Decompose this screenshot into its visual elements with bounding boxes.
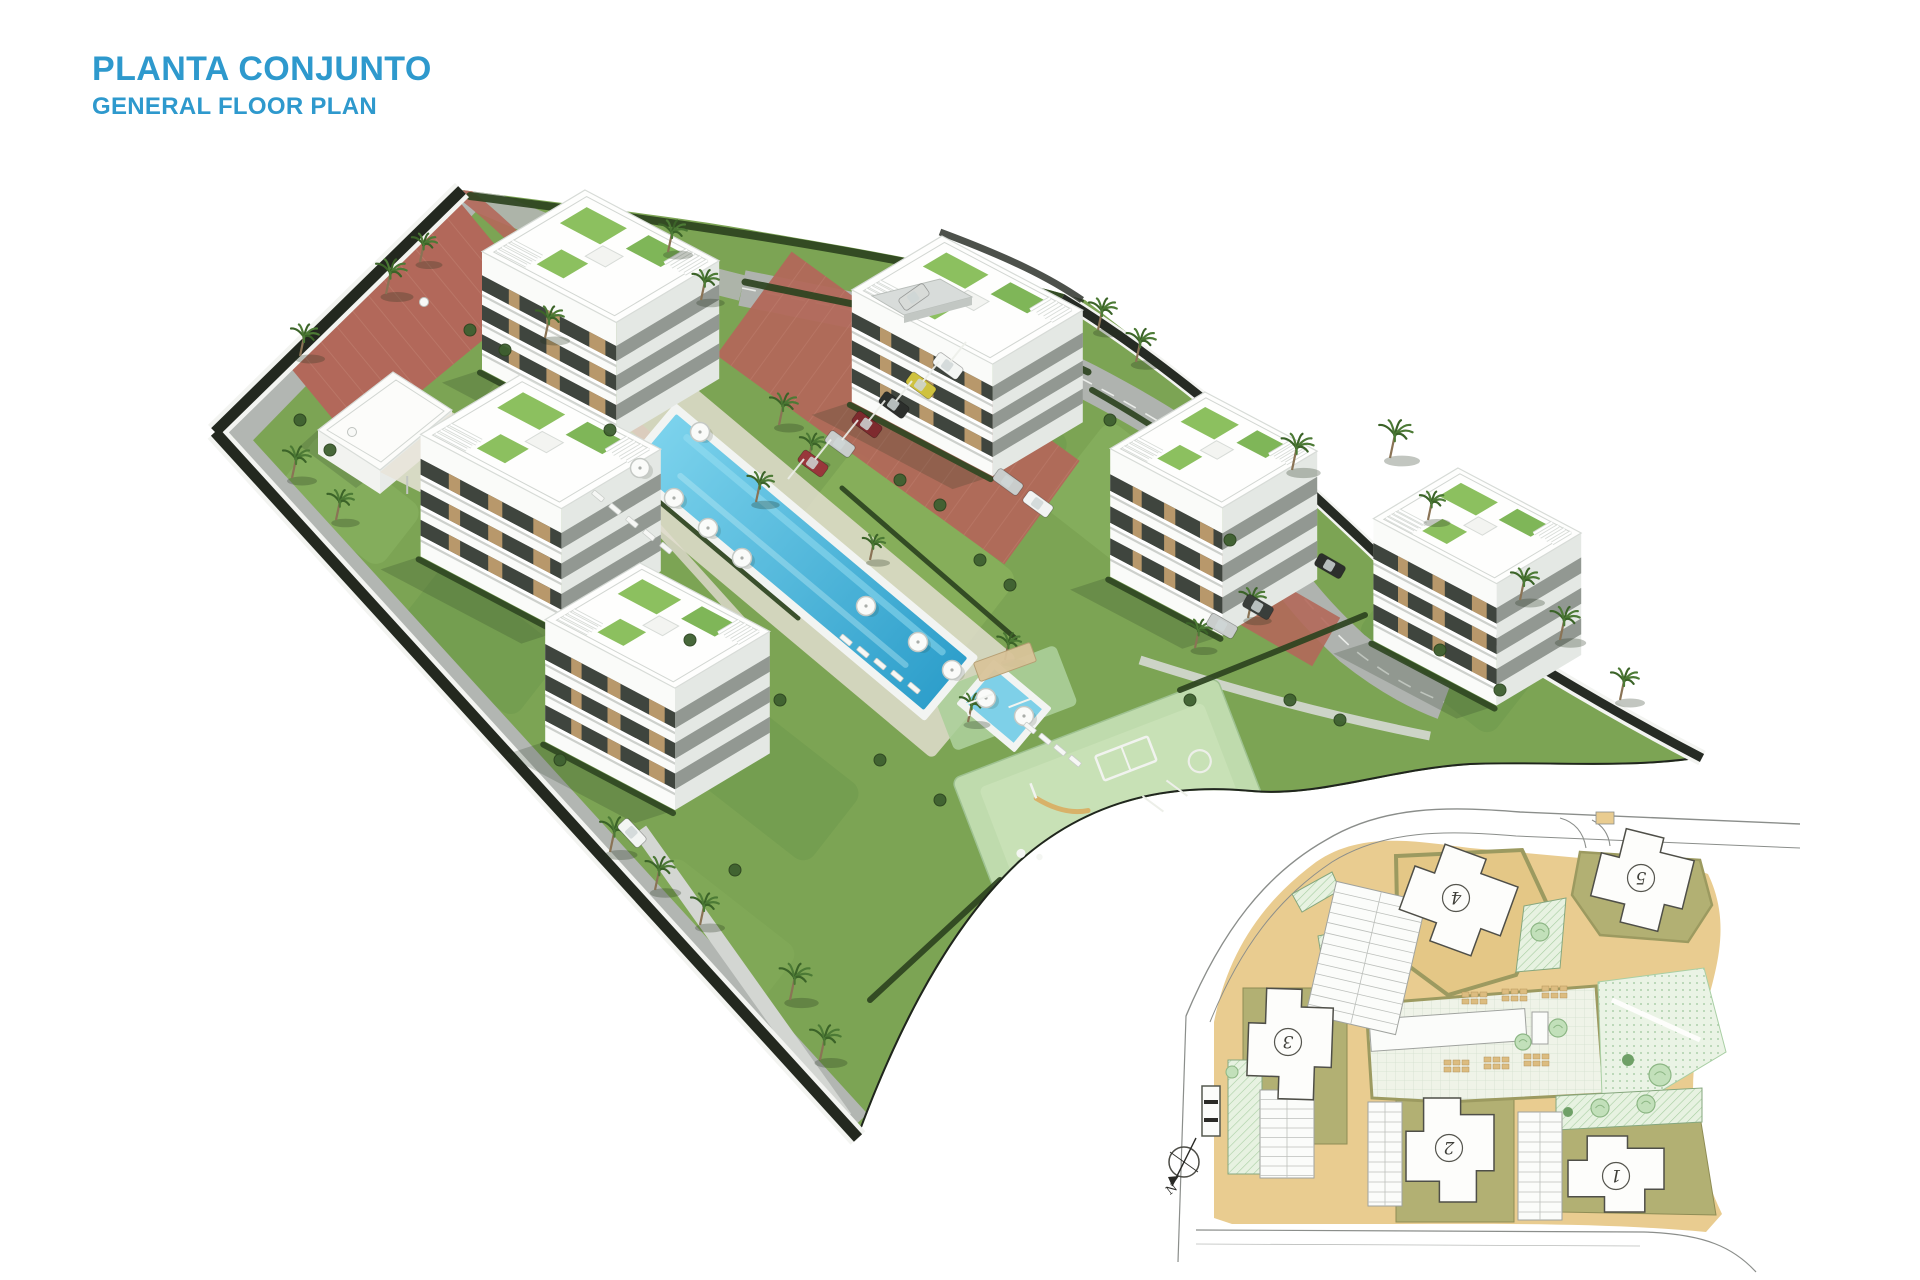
site-plan-inset xyxy=(1168,809,1800,1272)
plan-building-1-label: 1 xyxy=(1611,1165,1622,1185)
page: PLANTA CONJUNTO GENERAL FLOOR PLAN xyxy=(0,0,1920,1280)
plan-parking-lot xyxy=(1368,1102,1402,1206)
palm-tree xyxy=(1615,679,1645,707)
plan-building-5-label: 5 xyxy=(1636,867,1647,887)
title-block: PLANTA CONJUNTO GENERAL FLOOR PLAN xyxy=(92,50,432,121)
compass-north-label: N xyxy=(1163,1180,1180,1197)
masterplan-illustration: 1 2 3 4 5 N xyxy=(0,0,1920,1280)
page-title: PLANTA CONJUNTO xyxy=(92,50,432,89)
plan-parking-lot xyxy=(1518,1112,1562,1220)
plan-building-2-label: 2 xyxy=(1444,1137,1456,1157)
plan-building-4-label: 4 xyxy=(1451,887,1463,907)
plan-building-3-label: 3 xyxy=(1283,1031,1294,1051)
page-subtitle: GENERAL FLOOR PLAN xyxy=(92,93,432,121)
palm-tree xyxy=(1384,434,1420,467)
compass-icon xyxy=(1168,1138,1199,1186)
plan-parking-lot xyxy=(1260,1090,1314,1178)
